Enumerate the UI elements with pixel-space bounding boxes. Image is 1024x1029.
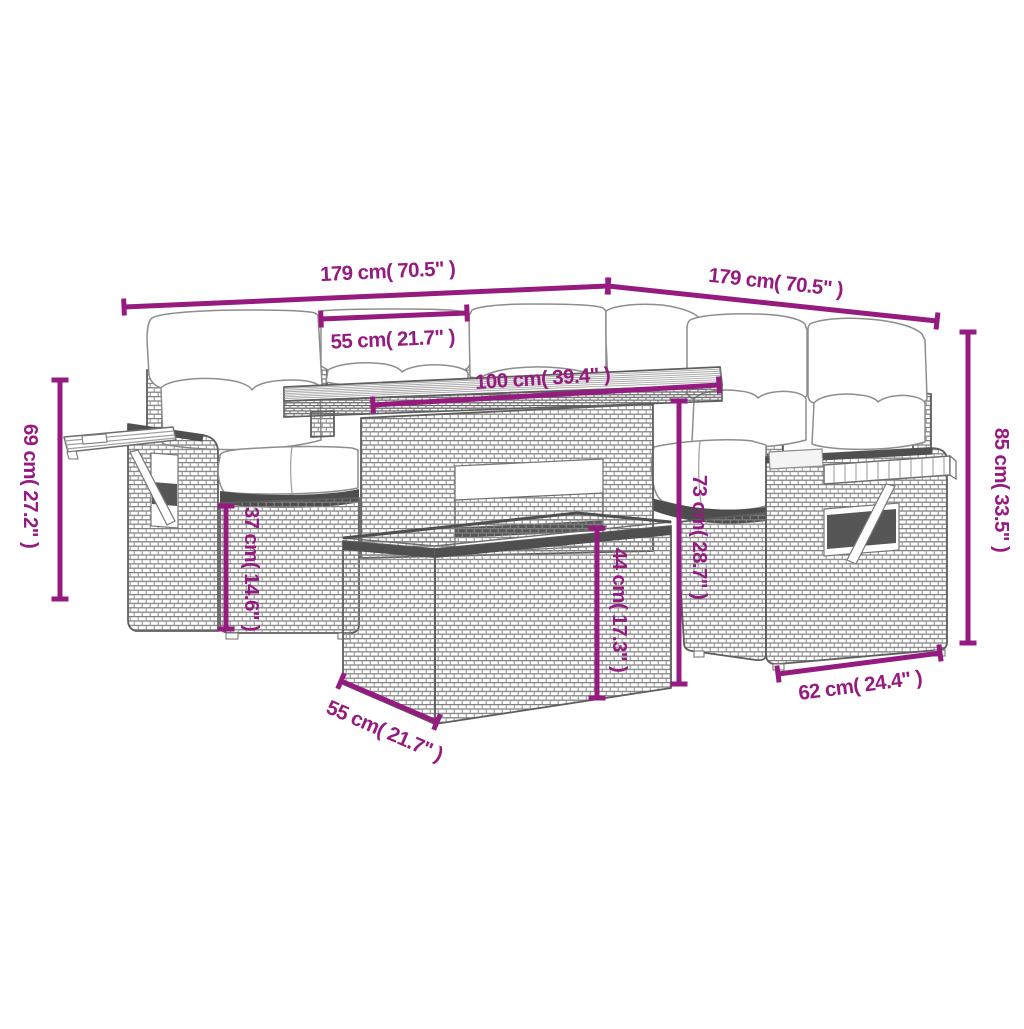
svg-text:44 cm( 17.3" ): 44 cm( 17.3" ) (608, 548, 631, 672)
svg-text:69 cm( 27.2" ): 69 cm( 27.2" ) (19, 424, 42, 548)
svg-text:37 cm( 14.6" ): 37 cm( 14.6" ) (240, 507, 263, 631)
svg-text:73 cm( 28.7" ): 73 cm( 28.7" ) (688, 475, 711, 599)
svg-text:85 cm( 33.5" ): 85 cm( 33.5" ) (990, 428, 1013, 552)
